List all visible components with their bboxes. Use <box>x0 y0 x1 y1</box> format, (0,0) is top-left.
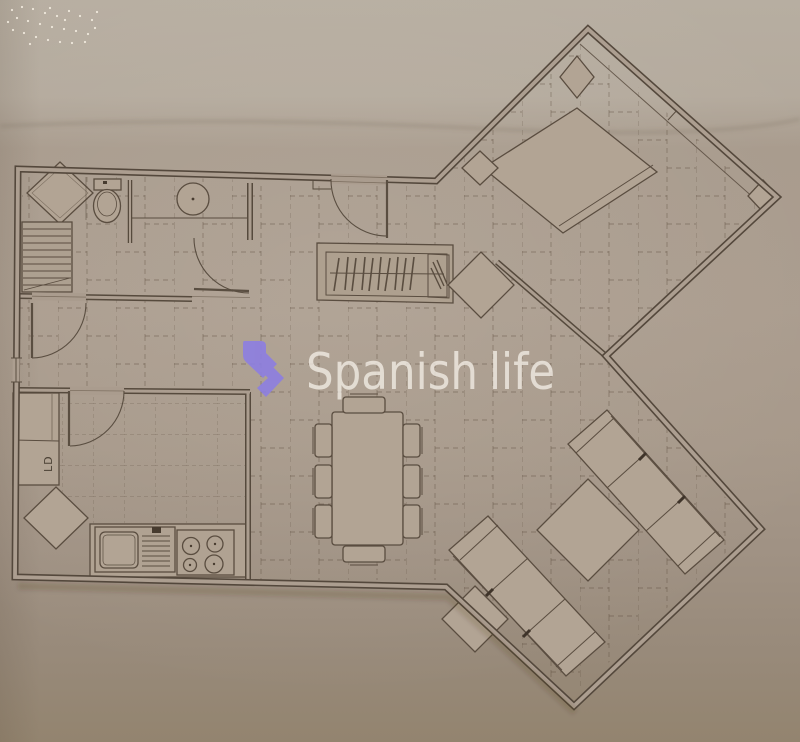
toilet <box>94 179 122 223</box>
floorplan-photo: LD Spanish life <box>0 0 800 742</box>
dust-speckles <box>7 6 98 45</box>
hanger-closet <box>317 243 453 303</box>
room-label-ld: LD <box>42 455 55 472</box>
floor-plan: LD Spanish life <box>0 0 800 742</box>
sink-tap <box>152 527 161 533</box>
kitchen-counter <box>90 524 246 577</box>
staircase <box>22 222 72 292</box>
watermark-text-spanish: Spanish <box>306 343 478 401</box>
dining-table <box>332 412 403 545</box>
kitchen-floor <box>60 394 246 523</box>
watermark-text-life: life <box>489 343 555 401</box>
